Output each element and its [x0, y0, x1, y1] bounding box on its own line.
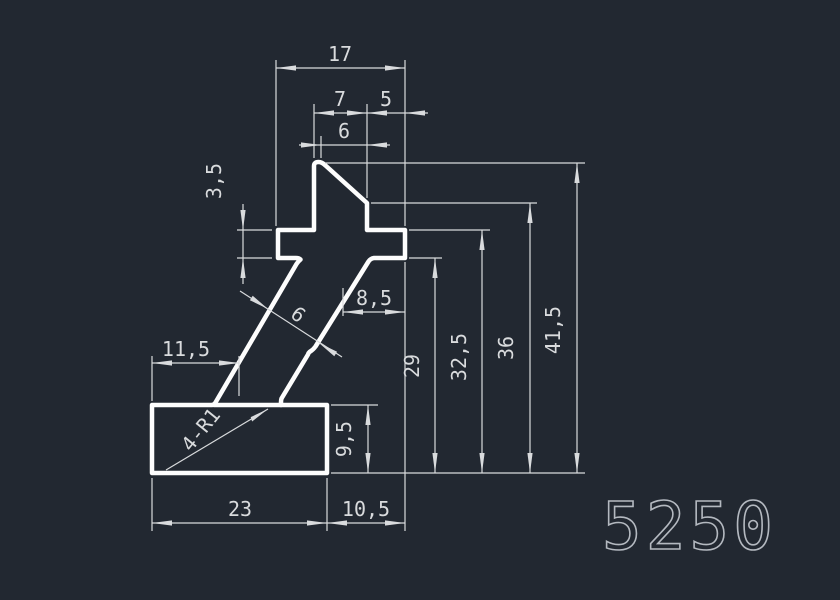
- dim-6-top: 6: [338, 119, 350, 143]
- dim-29: 29: [400, 354, 424, 378]
- dim-32-5: 32,5: [447, 333, 471, 381]
- dim-7: 7: [334, 87, 346, 111]
- dim-36: 36: [494, 336, 518, 360]
- part-number-text: 5250: [602, 488, 777, 565]
- dim-3-5: 3,5: [202, 163, 226, 199]
- dim-11-5: 11,5: [162, 337, 210, 361]
- dim-10-5: 10,5: [342, 497, 390, 521]
- dim-17: 17: [328, 42, 352, 66]
- dim-23: 23: [228, 497, 252, 521]
- dim-8-5: 8,5: [356, 286, 392, 310]
- dim-9-5: 9,5: [332, 421, 356, 457]
- dim-5: 5: [380, 87, 392, 111]
- cad-drawing-canvas: 177563,58,511,59,52932,53641,52310,564-R…: [0, 0, 840, 600]
- dim-41-5: 41,5: [541, 306, 565, 354]
